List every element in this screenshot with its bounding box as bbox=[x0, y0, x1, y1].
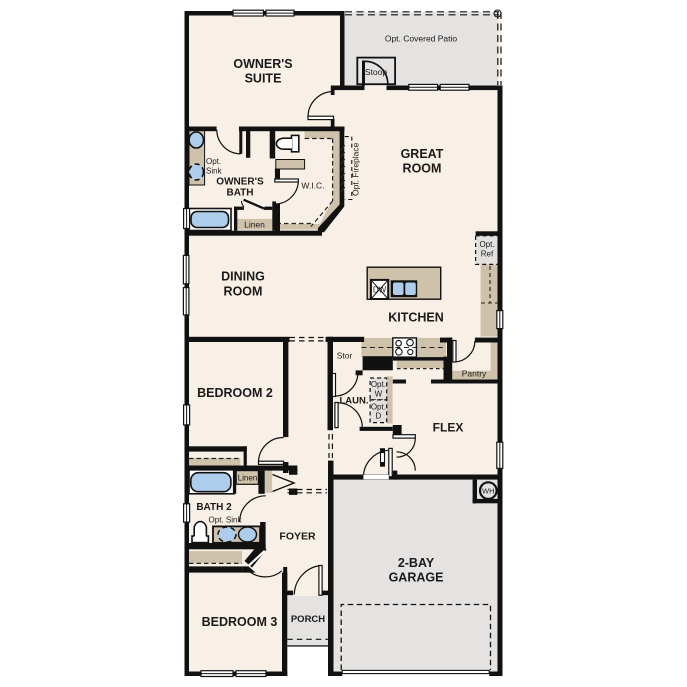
svg-text:PORCH: PORCH bbox=[291, 614, 325, 625]
svg-text:Linen: Linen bbox=[238, 474, 258, 483]
svg-text:Linen: Linen bbox=[244, 220, 265, 230]
svg-text:Sink: Sink bbox=[206, 167, 223, 176]
svg-text:SUITE: SUITE bbox=[245, 72, 282, 86]
svg-text:BATH: BATH bbox=[226, 188, 253, 199]
svg-text:D: D bbox=[376, 412, 382, 421]
svg-text:BEDROOM 3: BEDROOM 3 bbox=[202, 615, 278, 629]
svg-text:Opt.: Opt. bbox=[206, 157, 221, 166]
svg-text:W.I.C.: W.I.C. bbox=[301, 181, 324, 191]
svg-text:Ref: Ref bbox=[481, 250, 494, 259]
svg-text:DW: DW bbox=[373, 286, 387, 295]
svg-text:OWNER'S: OWNER'S bbox=[233, 57, 292, 71]
svg-text:Opt. Covered Patio: Opt. Covered Patio bbox=[385, 34, 458, 44]
svg-text:Stor: Stor bbox=[337, 351, 353, 361]
svg-text:OWNER'S: OWNER'S bbox=[216, 177, 264, 188]
svg-text:BEDROOM 2: BEDROOM 2 bbox=[197, 386, 273, 400]
svg-text:BATH 2: BATH 2 bbox=[196, 502, 232, 513]
svg-text:ROOM: ROOM bbox=[403, 162, 442, 176]
svg-text:2-BAY: 2-BAY bbox=[398, 556, 435, 570]
svg-text:ROOM: ROOM bbox=[224, 285, 263, 299]
svg-text:FOYER: FOYER bbox=[279, 531, 316, 543]
svg-text:Opt.: Opt. bbox=[371, 380, 386, 389]
svg-text:GREAT: GREAT bbox=[401, 147, 444, 161]
svg-text:FLEX: FLEX bbox=[433, 421, 464, 435]
svg-text:DINING: DINING bbox=[221, 270, 265, 284]
svg-text:Opt. Sink: Opt. Sink bbox=[209, 516, 243, 525]
svg-text:Opt.: Opt. bbox=[371, 403, 386, 412]
svg-text:Opt.: Opt. bbox=[479, 240, 494, 249]
svg-text:W: W bbox=[375, 390, 383, 399]
svg-text:LAUN.: LAUN. bbox=[339, 396, 368, 407]
svg-text:Pantry: Pantry bbox=[462, 369, 487, 379]
svg-text:GARAGE: GARAGE bbox=[389, 571, 444, 585]
svg-text:KITCHEN: KITCHEN bbox=[388, 311, 444, 325]
svg-text:WH: WH bbox=[482, 487, 495, 496]
svg-text:Opt. Fireplace: Opt. Fireplace bbox=[351, 142, 361, 196]
svg-text:Stoop: Stoop bbox=[365, 67, 387, 77]
